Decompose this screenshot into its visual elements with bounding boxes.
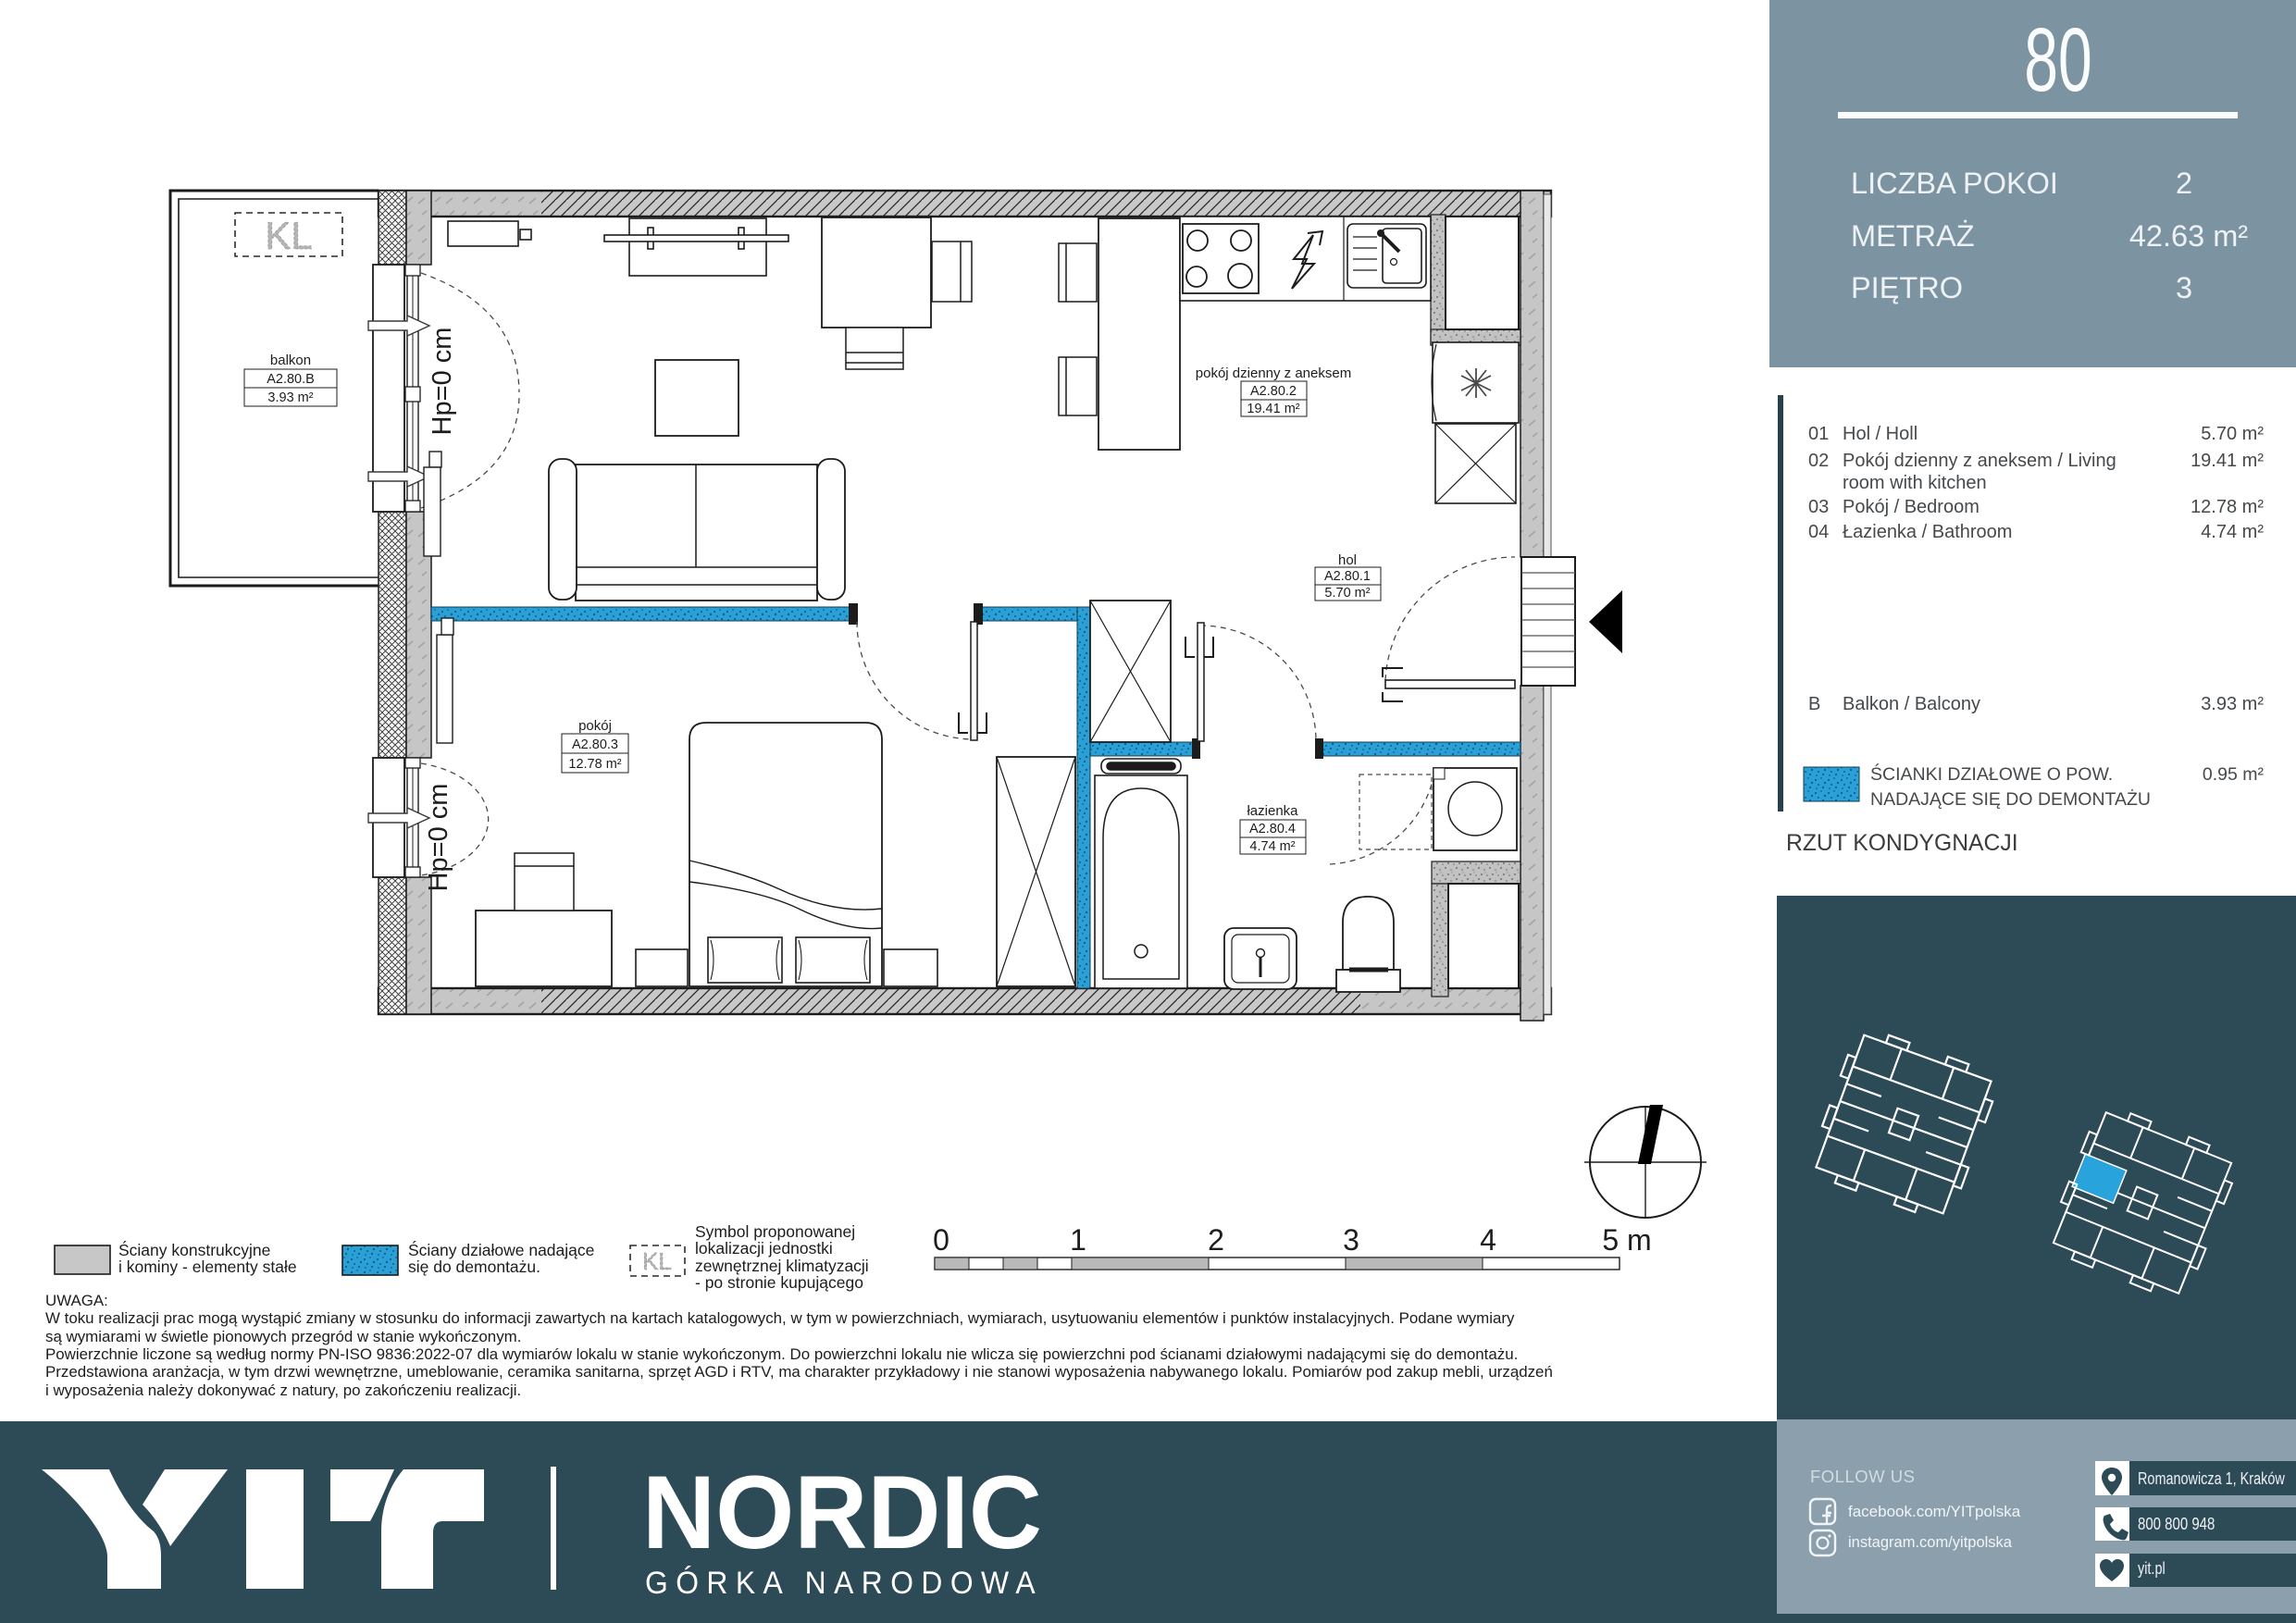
svg-text:A2.80.2: A2.80.2 [1250,384,1297,399]
svg-text:19.41 m²: 19.41 m² [1247,402,1299,416]
svg-text:0: 0 [933,1223,949,1257]
svg-text:Hp=0 cm: Hp=0 cm [424,784,453,892]
svg-text:A2.80.1: A2.80.1 [1324,569,1371,584]
svg-text:NORDIC: NORDIC [642,1455,1042,1570]
svg-text:KL: KL [265,214,312,257]
svg-text:GÓRKA NARODOWA: GÓRKA NARODOWA [645,1566,1043,1601]
svg-text:5 m: 5 m [1602,1223,1651,1257]
svg-text:3: 3 [1343,1223,1359,1257]
svg-text:A2.80.3: A2.80.3 [572,737,618,752]
svg-text:hol: hol [1338,552,1357,568]
svg-text:1: 1 [1070,1223,1086,1257]
svg-text:3.93 m²: 3.93 m² [267,390,313,405]
svg-text:pokój: pokój [578,718,612,734]
svg-text:5.70 m²: 5.70 m² [1324,586,1370,601]
svg-text:balkon: balkon [270,353,311,368]
svg-text:2: 2 [1208,1223,1224,1257]
svg-text:A2.80.B: A2.80.B [267,372,315,387]
svg-text:12.78 m²: 12.78 m² [568,757,621,772]
svg-text:łazienka: łazienka [1247,803,1298,819]
svg-text:pokój dzienny z aneksem: pokój dzienny z aneksem [1196,365,1351,381]
svg-text:4: 4 [1480,1223,1496,1257]
svg-text:A2.80.4: A2.80.4 [1249,822,1296,836]
svg-text:KL: KL [642,1247,672,1275]
svg-text:Hp=0 cm: Hp=0 cm [428,328,457,436]
svg-text:4.74 m²: 4.74 m² [1249,839,1295,854]
